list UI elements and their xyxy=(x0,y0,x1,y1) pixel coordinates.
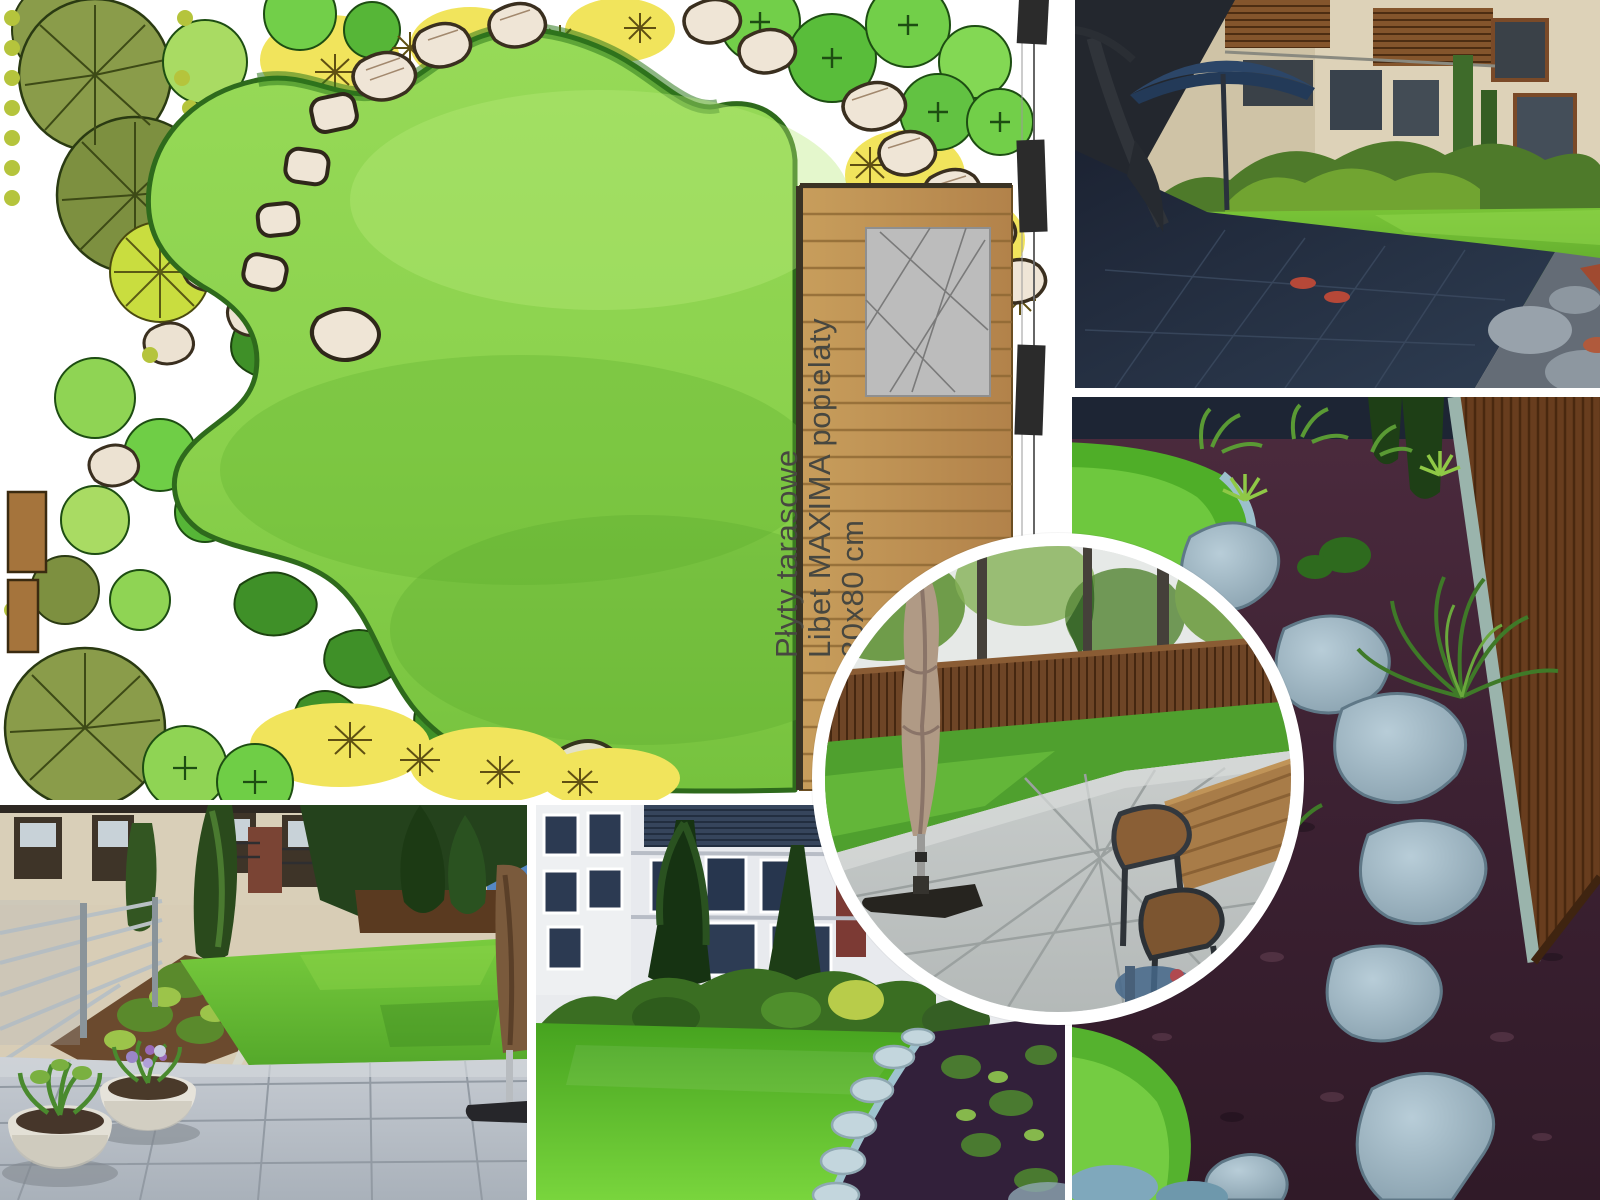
deck-material-label-line2: Libet MAXIMA popielaty xyxy=(803,318,836,658)
deck-material-label: Płyty tarasowe Libet MAXIMA popielaty 80… xyxy=(770,318,869,658)
deck-material-label-line1: Płyty tarasowe xyxy=(770,318,803,658)
tile-sample xyxy=(866,228,990,396)
garden-collage: Płyty tarasowe Libet MAXIMA popielaty 80… xyxy=(0,0,1600,1200)
circle-inset-photo-patio-parasol xyxy=(812,533,1304,1025)
photo-patio-with-planters xyxy=(0,805,527,1200)
photo-courtyard-hammock-parasol xyxy=(1075,0,1600,388)
deck-material-label-line3: 80x80 cm xyxy=(836,318,869,658)
